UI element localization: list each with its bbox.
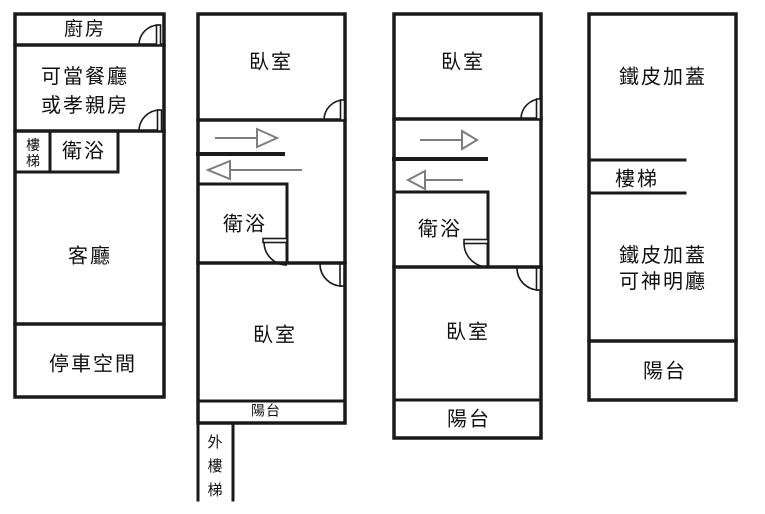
door-leaf xyxy=(158,110,162,131)
room-label-bath-2f: 衛浴 xyxy=(223,211,267,238)
room-label-dining: 可當餐廳 或孝親房 xyxy=(41,62,129,120)
room-label-parking: 停車空間 xyxy=(49,351,137,378)
room-label-outer-stairs: 外 樓 梯 xyxy=(207,430,222,502)
wall-unit3-outline xyxy=(394,14,541,438)
door-leaf xyxy=(537,268,541,290)
room-label-bedroom-2f-rear: 臥室 xyxy=(253,322,297,349)
stair-up-arrowhead-icon xyxy=(257,129,277,147)
floor-plan: 廚房 可當餐廳 或孝親房 樓 梯 衛浴 客廳 停車空間 臥室 衛浴 臥室 陽台 … xyxy=(0,0,765,514)
door-leaf xyxy=(537,99,541,119)
door-arc xyxy=(320,264,342,286)
door-leaf xyxy=(263,239,287,243)
stair-down-arrowhead-icon xyxy=(208,161,230,179)
room-label-stairs-1f: 樓 梯 xyxy=(26,138,40,170)
room-label-shrine-room: 鐵皮加蓋 可神明廳 xyxy=(619,242,707,294)
door-leaf xyxy=(464,240,488,244)
room-label-balcony-2f: 陽台 xyxy=(251,403,281,422)
door-leaf xyxy=(341,100,345,120)
room-label-bedroom-3f-rear: 臥室 xyxy=(446,319,490,346)
room-label-bath-3f: 衛浴 xyxy=(418,216,462,243)
room-label-living: 客廳 xyxy=(68,243,112,270)
room-label-bath-1f: 衛浴 xyxy=(62,138,106,165)
room-label-balcony-roof: 陽台 xyxy=(643,358,687,385)
room-label-kitchen: 廚房 xyxy=(64,17,106,43)
door-arc xyxy=(464,243,488,267)
stair-up-arrowhead-icon xyxy=(462,131,477,149)
stair-down-arrowhead-icon xyxy=(408,171,425,189)
room-label-balcony-3f: 陽台 xyxy=(447,406,491,433)
room-label-bedroom-2f-front: 臥室 xyxy=(249,49,293,76)
room-label-stairs-roof: 樓梯 xyxy=(615,166,659,193)
door-leaf xyxy=(157,25,161,45)
room-label-rooftop-addition: 鐵皮加蓋 xyxy=(619,64,707,91)
door-leaf xyxy=(340,264,344,286)
room-label-bedroom-3f-front: 臥室 xyxy=(441,49,485,76)
